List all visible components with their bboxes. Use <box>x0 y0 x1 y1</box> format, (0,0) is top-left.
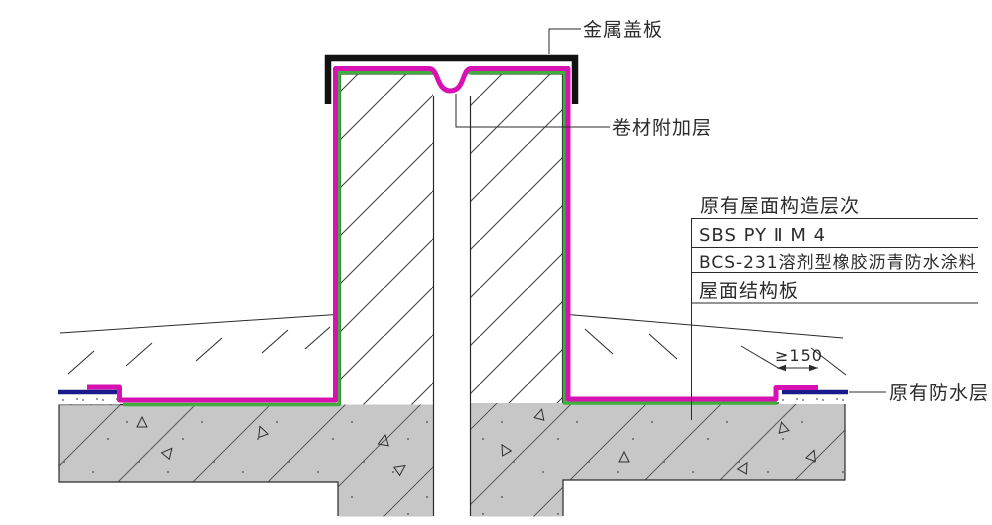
layers-table-row-sbs: SBS PY Ⅱ M 4 <box>699 225 826 246</box>
label-membrane-additional-layer: 卷材附加层 <box>612 117 712 139</box>
right-roof-slab <box>563 403 845 480</box>
roof-expansion-joint-detail: ≥150 金属盖板 卷材附加层 原有屋面构造层次 SBS PY Ⅱ M 4 BC… <box>0 0 992 525</box>
left-roof-slab <box>59 405 339 483</box>
concrete-structure <box>59 96 845 517</box>
dimension-arrow-left <box>777 365 786 371</box>
left-slope-line <box>60 315 336 334</box>
lap-dimension: ≥150 <box>775 346 823 371</box>
dimension-text: ≥150 <box>775 346 823 365</box>
dimension-arrow-right <box>809 365 818 371</box>
left-joint-beam <box>338 405 434 517</box>
right-screed-band <box>779 395 848 404</box>
label-metal-cover-plate: 金属盖板 <box>583 19 663 41</box>
detail-drawing-canvas: ≥150 金属盖板 卷材附加层 原有屋面构造层次 SBS PY Ⅱ M 4 BC… <box>0 0 992 525</box>
existing-sloped-layers <box>60 315 846 376</box>
layers-table-row-bcs: BCS-231溶剂型橡胶沥青防水涂料 <box>699 253 977 273</box>
right-joint-beam <box>471 403 564 517</box>
leader-metal-cover <box>549 29 581 54</box>
upstand-walls <box>341 74 563 405</box>
left-screed-band <box>58 395 120 405</box>
label-existing-waterproof-layer: 原有防水层 <box>889 382 989 404</box>
slope-hatch-dashes <box>68 327 846 375</box>
layers-table-title: 原有屋面构造层次 <box>700 195 860 217</box>
right-slope-line <box>568 315 843 339</box>
right-upstand-wall <box>471 74 563 403</box>
layers-table-row-slab: 屋面结构板 <box>699 280 799 302</box>
left-upstand-wall <box>341 74 433 405</box>
